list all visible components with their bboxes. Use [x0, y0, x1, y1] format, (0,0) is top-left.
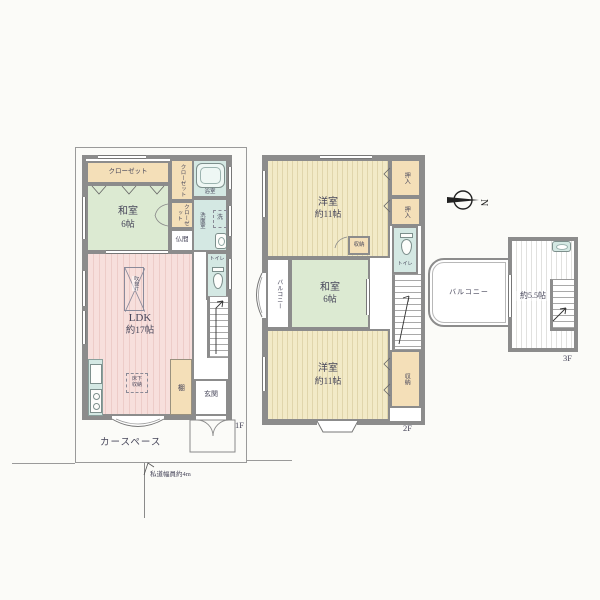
bathtub-inner	[200, 167, 221, 184]
stairs-1f	[207, 296, 228, 358]
genkan: 玄関	[194, 379, 228, 416]
burner-1	[93, 393, 100, 400]
oshiire-2: 押入	[390, 197, 421, 226]
boundary-line-left-ext	[12, 463, 75, 464]
floor3-label: 3F	[563, 353, 572, 364]
window-1f-washroom-right	[228, 206, 232, 236]
fusuma-washitsu-ldk	[106, 250, 168, 254]
yoshitsu-2f-bottom: 洋室 約11帖	[266, 329, 390, 421]
room-3f-size: 約5.5帖	[512, 291, 554, 301]
washroom: 洗面室 洗	[192, 198, 228, 252]
balcony-3f-inner-line: バルコニー	[432, 262, 506, 323]
floor1-plan: クローゼット クローゼット クローゼット 仏間 和室 6帖 浴室 洗面室 洗	[82, 155, 232, 420]
toilet-1f: トイレ	[206, 252, 228, 300]
baywindow-gap-2f-left	[262, 273, 266, 318]
entrance-door-gap	[196, 416, 226, 420]
toilet-2f: トイレ	[392, 226, 418, 274]
window-2f-left-bottom	[262, 357, 266, 391]
toilet-bowl-icon	[213, 273, 223, 289]
balcony-3f: バルコニー	[428, 258, 510, 327]
road-width-note: 私道幅員約4m	[150, 471, 191, 479]
butsuma-room: 仏間	[170, 229, 194, 252]
toilet-2f-tank-icon	[400, 233, 413, 238]
floor3-plan: 約5.5帖	[508, 237, 578, 352]
floor1-label: 1F	[235, 420, 244, 431]
sink-3f-bowl	[556, 244, 568, 250]
shelf: 棚	[170, 359, 192, 415]
window-1f-ldk-left-1	[82, 271, 86, 306]
boundary-line-right-ext	[247, 460, 292, 461]
baywindow-gap-1f	[112, 416, 164, 420]
baywindow-gap-2f-bottom	[317, 421, 357, 425]
sink-3f-icon	[552, 241, 571, 252]
yoshitsu-2f-top: 洋室 約11帖	[266, 159, 390, 258]
compass-north-letter: N	[478, 199, 489, 206]
storage-2f-right: 収納	[390, 350, 421, 408]
stairs-2f	[392, 274, 421, 350]
washing-machine-icon: 洗	[213, 210, 227, 228]
floor2-plan: 洋室 約11帖 押入 押入 トイレ 収納 バルコニー 和室 6帖 収納 洋室	[262, 155, 425, 425]
burner-2	[93, 403, 100, 410]
floor-storage: 床下収納	[126, 373, 148, 393]
vanity-sink-icon	[215, 233, 227, 249]
washitsu-1f: 和室 6帖	[86, 184, 170, 252]
toilet-2f-bowl-icon	[401, 239, 412, 255]
window-1f-top	[98, 155, 146, 159]
window-3f-left	[508, 275, 512, 317]
floor2-label: 2F	[403, 423, 412, 434]
ldk-room: LDK 約17帖 吹抜け 床下収納 棚	[86, 252, 194, 416]
car-space-label: カースペース	[100, 438, 161, 450]
window-2f-left-top	[262, 171, 266, 217]
kitchen-sink-icon	[90, 364, 102, 384]
window-1f-ldk-left-2	[82, 311, 86, 344]
floorplan-canvas: 私道幅員約4m カースペース 1F クローゼット クローゼット クローゼット 仏…	[0, 0, 600, 600]
fusuma-washitsu2f-right	[366, 279, 370, 315]
window-1f-toilet-right	[228, 259, 232, 289]
stairs-3f	[550, 279, 574, 331]
balcony-2f: バルコニー	[266, 258, 290, 329]
stove-icon	[90, 389, 102, 413]
toilet-tank-icon	[212, 267, 224, 272]
oshiire-1: 押入	[390, 159, 421, 197]
closet-wide: クローゼット	[86, 161, 170, 184]
bathroom: 浴室	[192, 159, 228, 198]
sink-bowl	[218, 237, 225, 246]
kitchen-counter	[88, 359, 103, 416]
window-1f-washitsu-left	[82, 197, 86, 239]
storage-2f-upper: 収納	[348, 236, 370, 255]
window-2f-top	[320, 155, 372, 159]
bathtub-icon	[196, 163, 225, 188]
window-1f-bath-right	[228, 167, 232, 189]
compass-icon: N	[447, 191, 489, 209]
ldk-label-block: LDK 約17帖	[88, 312, 192, 338]
road-measure-line	[144, 463, 145, 518]
washitsu-2f: 和室 6帖	[290, 258, 370, 329]
void-symbol: 吹抜け	[124, 267, 144, 311]
closet-lower: クローゼット	[170, 201, 194, 229]
closet-upper: クローゼット	[170, 159, 194, 201]
